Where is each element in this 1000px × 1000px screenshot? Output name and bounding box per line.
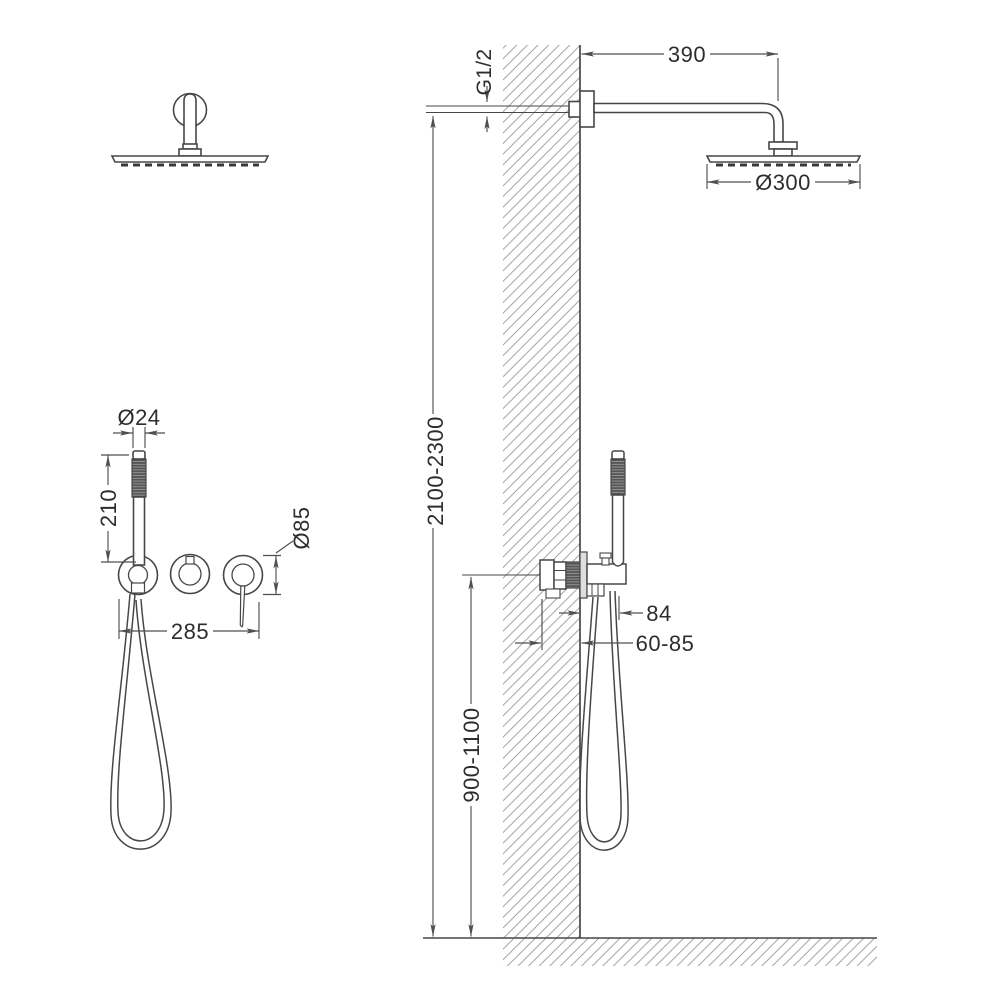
hose-loop-front-outer <box>111 594 171 849</box>
dim-84-label: 84 <box>646 601 671 626</box>
dim-390-label: 390 <box>668 42 706 67</box>
rain-shower-side-view <box>426 91 860 165</box>
dimensions: 390 G1/2 Ø300 2100-2300 <box>96 42 860 937</box>
valve-stub-in-wall <box>546 589 560 598</box>
dim-900-label-group: 900-1100 <box>459 704 484 806</box>
mixer-body-side <box>587 564 626 584</box>
handshower-cap-side <box>612 451 624 459</box>
valve-locknut-dark <box>566 562 581 588</box>
shower-arm <box>594 104 783 143</box>
dim-head-diameter: Ø300 <box>707 164 860 195</box>
diverter-knob-front <box>179 563 201 585</box>
dim-escutcheon-diameter: Ø85 <box>263 506 314 594</box>
hose-nut-side <box>587 584 604 596</box>
dim-arm-length: 390 <box>582 42 779 101</box>
shower-technical-drawing: 390 G1/2 Ø300 2100-2300 <box>0 0 1000 1000</box>
escutcheon-side <box>580 552 587 598</box>
mixer-lever-front <box>240 586 245 627</box>
arm-wall-flange <box>580 91 594 127</box>
holder-ring-front <box>129 566 148 585</box>
dim-mount-height: 2100-2300 <box>423 116 448 937</box>
technical-drawing-page: 390 G1/2 Ø300 2100-2300 <box>0 0 1000 1000</box>
diverter-cap-side <box>600 553 611 558</box>
dim-285-label: 285 <box>171 619 209 644</box>
mixer-cartridge-front <box>232 564 254 586</box>
handshower-knurl-side <box>611 459 625 495</box>
handshower-cap-front <box>133 451 145 459</box>
head-connector-base-side <box>774 149 792 156</box>
hose-nut-front <box>132 583 145 593</box>
valve-hex-nut-side <box>554 562 566 589</box>
dim-handshower-length: 210 <box>96 455 136 562</box>
dim-210-label-group: 210 <box>96 485 121 531</box>
handshower-knurl-front <box>132 459 146 497</box>
dim-thread: G1/2 <box>473 49 496 132</box>
floor-hatch <box>503 938 877 966</box>
dim-mixer-height: 900-1100 <box>459 577 484 937</box>
valve-body-in-wall <box>540 560 554 590</box>
rain-head-side <box>707 156 860 162</box>
dim-handshower-diameter: Ø24 <box>113 405 165 448</box>
diverter-stem-side <box>602 558 609 565</box>
hose-loop-side-inner <box>587 591 621 842</box>
dim-6085-label: 60-85 <box>636 631 695 656</box>
dim-24-label: Ø24 <box>117 405 160 430</box>
rain-shower-front-view <box>112 94 268 166</box>
dim-g12-label: G1/2 <box>473 49 496 96</box>
mixer-front-view <box>111 451 263 849</box>
dim-85-label: Ø85 <box>289 506 314 549</box>
handshower-body-side <box>613 495 624 566</box>
head-connector-nut-side <box>769 142 797 149</box>
dim-210-label: 210 <box>96 489 121 527</box>
rain-head-front <box>112 156 268 162</box>
dim-2100-label: 2100-2300 <box>423 416 448 526</box>
dim-900-label: 900-1100 <box>459 707 484 802</box>
handshower-body-front <box>134 497 145 565</box>
wall-hatch <box>503 45 580 938</box>
head-connector-base-front <box>179 149 201 156</box>
dim-2100-label-group: 2100-2300 <box>423 414 448 528</box>
dim-300-label: Ø300 <box>755 170 811 195</box>
arm-tube-front <box>184 94 196 146</box>
diverter-tab-front <box>186 557 194 565</box>
